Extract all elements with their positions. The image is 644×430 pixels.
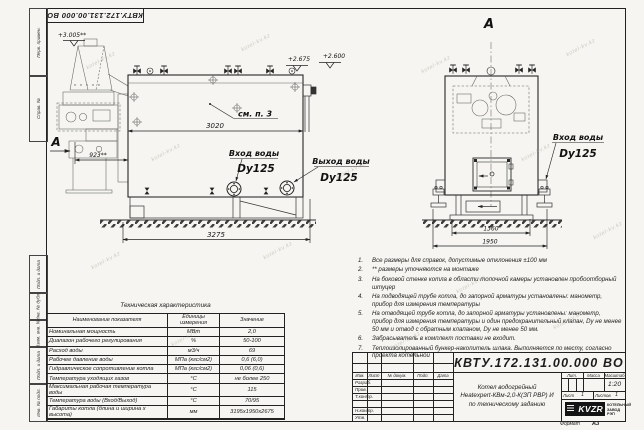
rev-header: Дата: [433, 372, 453, 379]
elev-2600: +2.600: [323, 53, 345, 60]
flue-outlet: [303, 85, 316, 132]
note-item: 3.На боковой стенке котла в области топо…: [358, 276, 622, 292]
table-cell-name: Габариты котла (длина и ширина х высота): [47, 406, 168, 419]
inlet-label-group-right: Вход воды Dy125: [546, 133, 604, 179]
title-block: Изм. Лист № докум. Подп. Дата Разраб. Пр…: [352, 352, 626, 422]
rev-header: Лист: [367, 372, 381, 379]
grid-line: [593, 391, 594, 399]
boiler-body-outline: [128, 75, 303, 197]
table-cell-value: 0,06 (0,6): [220, 365, 284, 374]
company-name: КОТЕЛЬНЫЙ ЗАВОД РЭП: [607, 403, 625, 417]
access-door: [473, 158, 513, 191]
table-cell-name: Температура уходящих газов: [47, 374, 168, 383]
grid-line: [561, 372, 562, 421]
dim-1950: 1950: [482, 239, 497, 246]
table-cell-name: Максимальная рабочая температура воды: [47, 384, 168, 397]
signature-row-label: Т.контр.: [354, 393, 381, 400]
table-cell-name: Рабочее давление воды: [47, 356, 168, 365]
note-text: На отводящей трубе котла, до запорной ар…: [368, 310, 622, 333]
inlet-dn: Dy125: [237, 163, 274, 175]
table-cell-value: 70/95: [220, 397, 284, 406]
sheets-value: 1: [615, 391, 618, 399]
inlet-label: Вход воды: [229, 149, 280, 158]
note-text: Все размеры для справок, допустимые откл…: [368, 257, 622, 265]
view-direction-letter: А: [50, 135, 60, 149]
grid-line: [561, 399, 625, 400]
tech-table: Наименование показателя Единицы измерени…: [46, 313, 285, 420]
signature-row-label: Утв.: [354, 414, 381, 421]
note-item: 1.Все размеры для справок, допустимые от…: [358, 257, 622, 265]
inlet-label: Вход воды: [553, 133, 604, 142]
left-side-flange: [436, 180, 445, 192]
see-note-text: см. п. 3: [238, 110, 272, 119]
doc-number: КВТУ.172.131.00.000 ВО: [453, 353, 625, 372]
signature-row-label: Пров.: [354, 386, 381, 393]
table-cell-unit: °С: [168, 397, 220, 406]
kvzr-logo: KVZR: [565, 402, 605, 416]
table-header-cell: Единицы измерения: [168, 314, 220, 328]
table-cell-unit: МПа (кгс/см2): [168, 365, 220, 374]
table-header-cell: Значение: [220, 314, 284, 328]
note-number: 3.: [358, 276, 368, 292]
outlet-label-group: Выход воды Dy125: [294, 157, 371, 184]
sheet-label: Лист: [563, 391, 574, 399]
note-text: На подводящей трубе котла, до запорной а…: [368, 293, 622, 309]
note-number: 2.: [358, 266, 368, 274]
rev-header: № докум.: [381, 372, 413, 379]
table-cell-value: 69: [220, 347, 284, 356]
sheets-label: Листов: [595, 391, 611, 399]
product-line: по техническому заданию: [469, 401, 545, 409]
table-cell-value: 115: [220, 384, 284, 397]
logo-text: KVZR: [578, 404, 603, 414]
company-line: ЗАВОД РЭП: [607, 408, 625, 417]
product-line: Heatexpert-КВм-2,0-К(ЗП РВР) И: [460, 392, 553, 400]
see-note-callout: см. п. 3: [209, 103, 278, 119]
table-cell-name: Расход воды: [47, 347, 168, 356]
dim-1360: 1360: [483, 226, 498, 233]
elev-3005: +3.005**: [58, 32, 86, 39]
top-valves: [133, 66, 295, 75]
product-name: Котел водогрейный Heatexpert-КВм-2,0-К(З…: [453, 372, 561, 421]
table-cell-unit: °С: [168, 374, 220, 383]
view-a-title: А: [483, 17, 494, 32]
mass-label: Масса: [583, 372, 604, 378]
inlet-label-group: Вход воды Dy125: [229, 149, 280, 181]
note-text: ** размеры уточняются на монтаже: [368, 266, 622, 274]
drawing-sheet: kotel-kv.kz kotel-kv.kz kotel-kv.kz kote…: [0, 0, 644, 430]
tech-table-title: Техническая характеристика: [46, 302, 285, 309]
signature-row-label: Разраб.: [354, 379, 381, 386]
table-cell-unit: мм: [168, 406, 220, 419]
inlet-flange: [227, 182, 241, 196]
table-cell-value: не более 250: [220, 374, 284, 383]
note-item: 2.** размеры уточняются на монтаже: [358, 266, 622, 274]
note-number: 1.: [358, 257, 368, 265]
table-header-cell: Наименование показателя: [47, 314, 168, 328]
product-line: Котел водогрейный: [478, 384, 537, 392]
rev-header: Изм.: [353, 372, 367, 379]
support-base: [130, 197, 303, 218]
table-cell-value: 0,6 (6,0): [220, 356, 284, 365]
table-cell-value: 3195х1950х2675: [220, 406, 284, 419]
table-cell-unit: м3/ч: [168, 347, 220, 356]
inlet-dn: Dy125: [559, 148, 596, 160]
table-cell-name: Номинальная мощность: [47, 328, 168, 337]
company-line: КОТЕЛЬНЫЙ: [607, 403, 625, 408]
dim-3020: 3020: [206, 122, 224, 130]
table-cell-name: Гидравлическое сопротивление котла: [47, 365, 168, 374]
grid-line: [568, 378, 569, 391]
signature-row-label: Н.контр.: [354, 407, 381, 414]
outlet-flange: [280, 181, 294, 195]
note-text: На боковой стенке котла в области топочн…: [368, 276, 622, 292]
dim-3275: 3275: [207, 231, 225, 239]
note-number: 5.: [358, 310, 368, 333]
grid-line: [353, 363, 453, 364]
table-cell-name: Температура воды (Вход/Выход): [47, 397, 168, 406]
note-item: 4.На подводящей трубе котла, до запорной…: [358, 293, 622, 309]
sheet-value: 1: [581, 391, 584, 399]
table-cell-name: Диапазон рабочего регулирования: [47, 337, 168, 346]
scale-value: 1:20: [604, 378, 625, 391]
logo-stripes-icon: [567, 405, 574, 413]
grid-line: [576, 378, 577, 391]
table-cell-unit: МПа (кгс/см2): [168, 356, 220, 365]
lit-label: Лит.: [561, 372, 583, 378]
rev-header: Подп.: [413, 372, 433, 379]
table-cell-value: 50-100: [220, 337, 284, 346]
elev-2675: +2.675: [288, 56, 310, 63]
note-number: 6.: [358, 335, 368, 343]
note-number: 4.: [358, 293, 368, 309]
table-cell-unit: °С: [168, 384, 220, 397]
table-cell-value: 2,0: [220, 328, 284, 337]
dim-923: 923**: [89, 152, 106, 159]
grid-line: [353, 400, 453, 401]
